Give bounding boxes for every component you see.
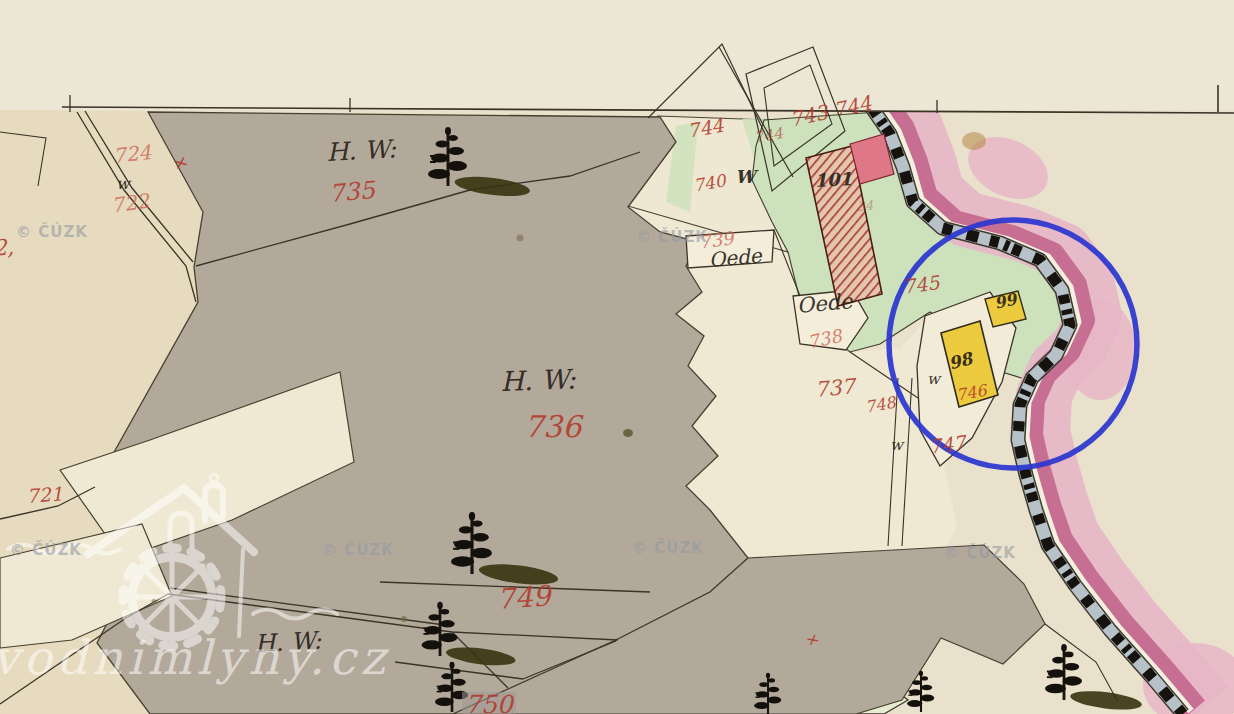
parcel-number-712-partial: 2, bbox=[0, 236, 15, 260]
building-number-99: 99 bbox=[993, 291, 1018, 311]
well-mark-w-722: w bbox=[116, 176, 130, 192]
parcel-number-724: 724 bbox=[112, 142, 152, 166]
parcel-number-749: 749 bbox=[496, 582, 551, 614]
cuzk-watermark-1: © ČÚZK bbox=[16, 225, 88, 240]
logo-wheel-spokes bbox=[127, 552, 217, 642]
parcel-number-721: 721 bbox=[26, 484, 64, 505]
map-linework bbox=[0, 0, 1234, 714]
oede-label-739: Oede bbox=[708, 245, 762, 270]
parcel-number-735: 735 bbox=[328, 178, 376, 206]
paper-margin-top bbox=[0, 0, 1234, 112]
boundary-cross-bottom: + bbox=[803, 630, 820, 649]
parcel-number-745: 745 bbox=[902, 273, 941, 297]
well-mark-w-747: w bbox=[890, 438, 903, 453]
vodnimlyny-watermark-text: vodnimlyny.cz bbox=[0, 630, 390, 685]
scribble-34: 34 bbox=[856, 199, 874, 213]
parcel-number-750: 750 bbox=[462, 692, 516, 714]
landuse-hw-label-735: H. W: bbox=[326, 136, 397, 165]
parcel-number-747: 747 bbox=[928, 433, 967, 457]
building-number-101: 101 bbox=[814, 170, 852, 190]
parcel-number-737: 737 bbox=[814, 377, 856, 401]
cadastral-map-scan[interactable]: 2,724+722H. W:735H. W:736721749H. W:7507… bbox=[0, 0, 1234, 714]
cuzk-watermark-3: © ČÚZK bbox=[10, 543, 82, 558]
well-mark-w-740: W bbox=[735, 168, 755, 186]
cuzk-watermark-6: © ČÚZK bbox=[944, 546, 1016, 561]
cuzk-watermark-5: © ČÚZK bbox=[632, 541, 704, 556]
cuzk-watermark-4: © ČÚZK bbox=[322, 543, 394, 558]
landuse-hw-label-736: H. W: bbox=[500, 365, 576, 395]
cuzk-watermark-2: © ČÚZK bbox=[636, 230, 708, 245]
oede-label-738: Oede bbox=[796, 291, 853, 317]
well-mark-w-98: w bbox=[927, 372, 940, 387]
parcel-number-736: 736 bbox=[524, 412, 581, 442]
parcel-number-722: 722 bbox=[110, 191, 151, 216]
